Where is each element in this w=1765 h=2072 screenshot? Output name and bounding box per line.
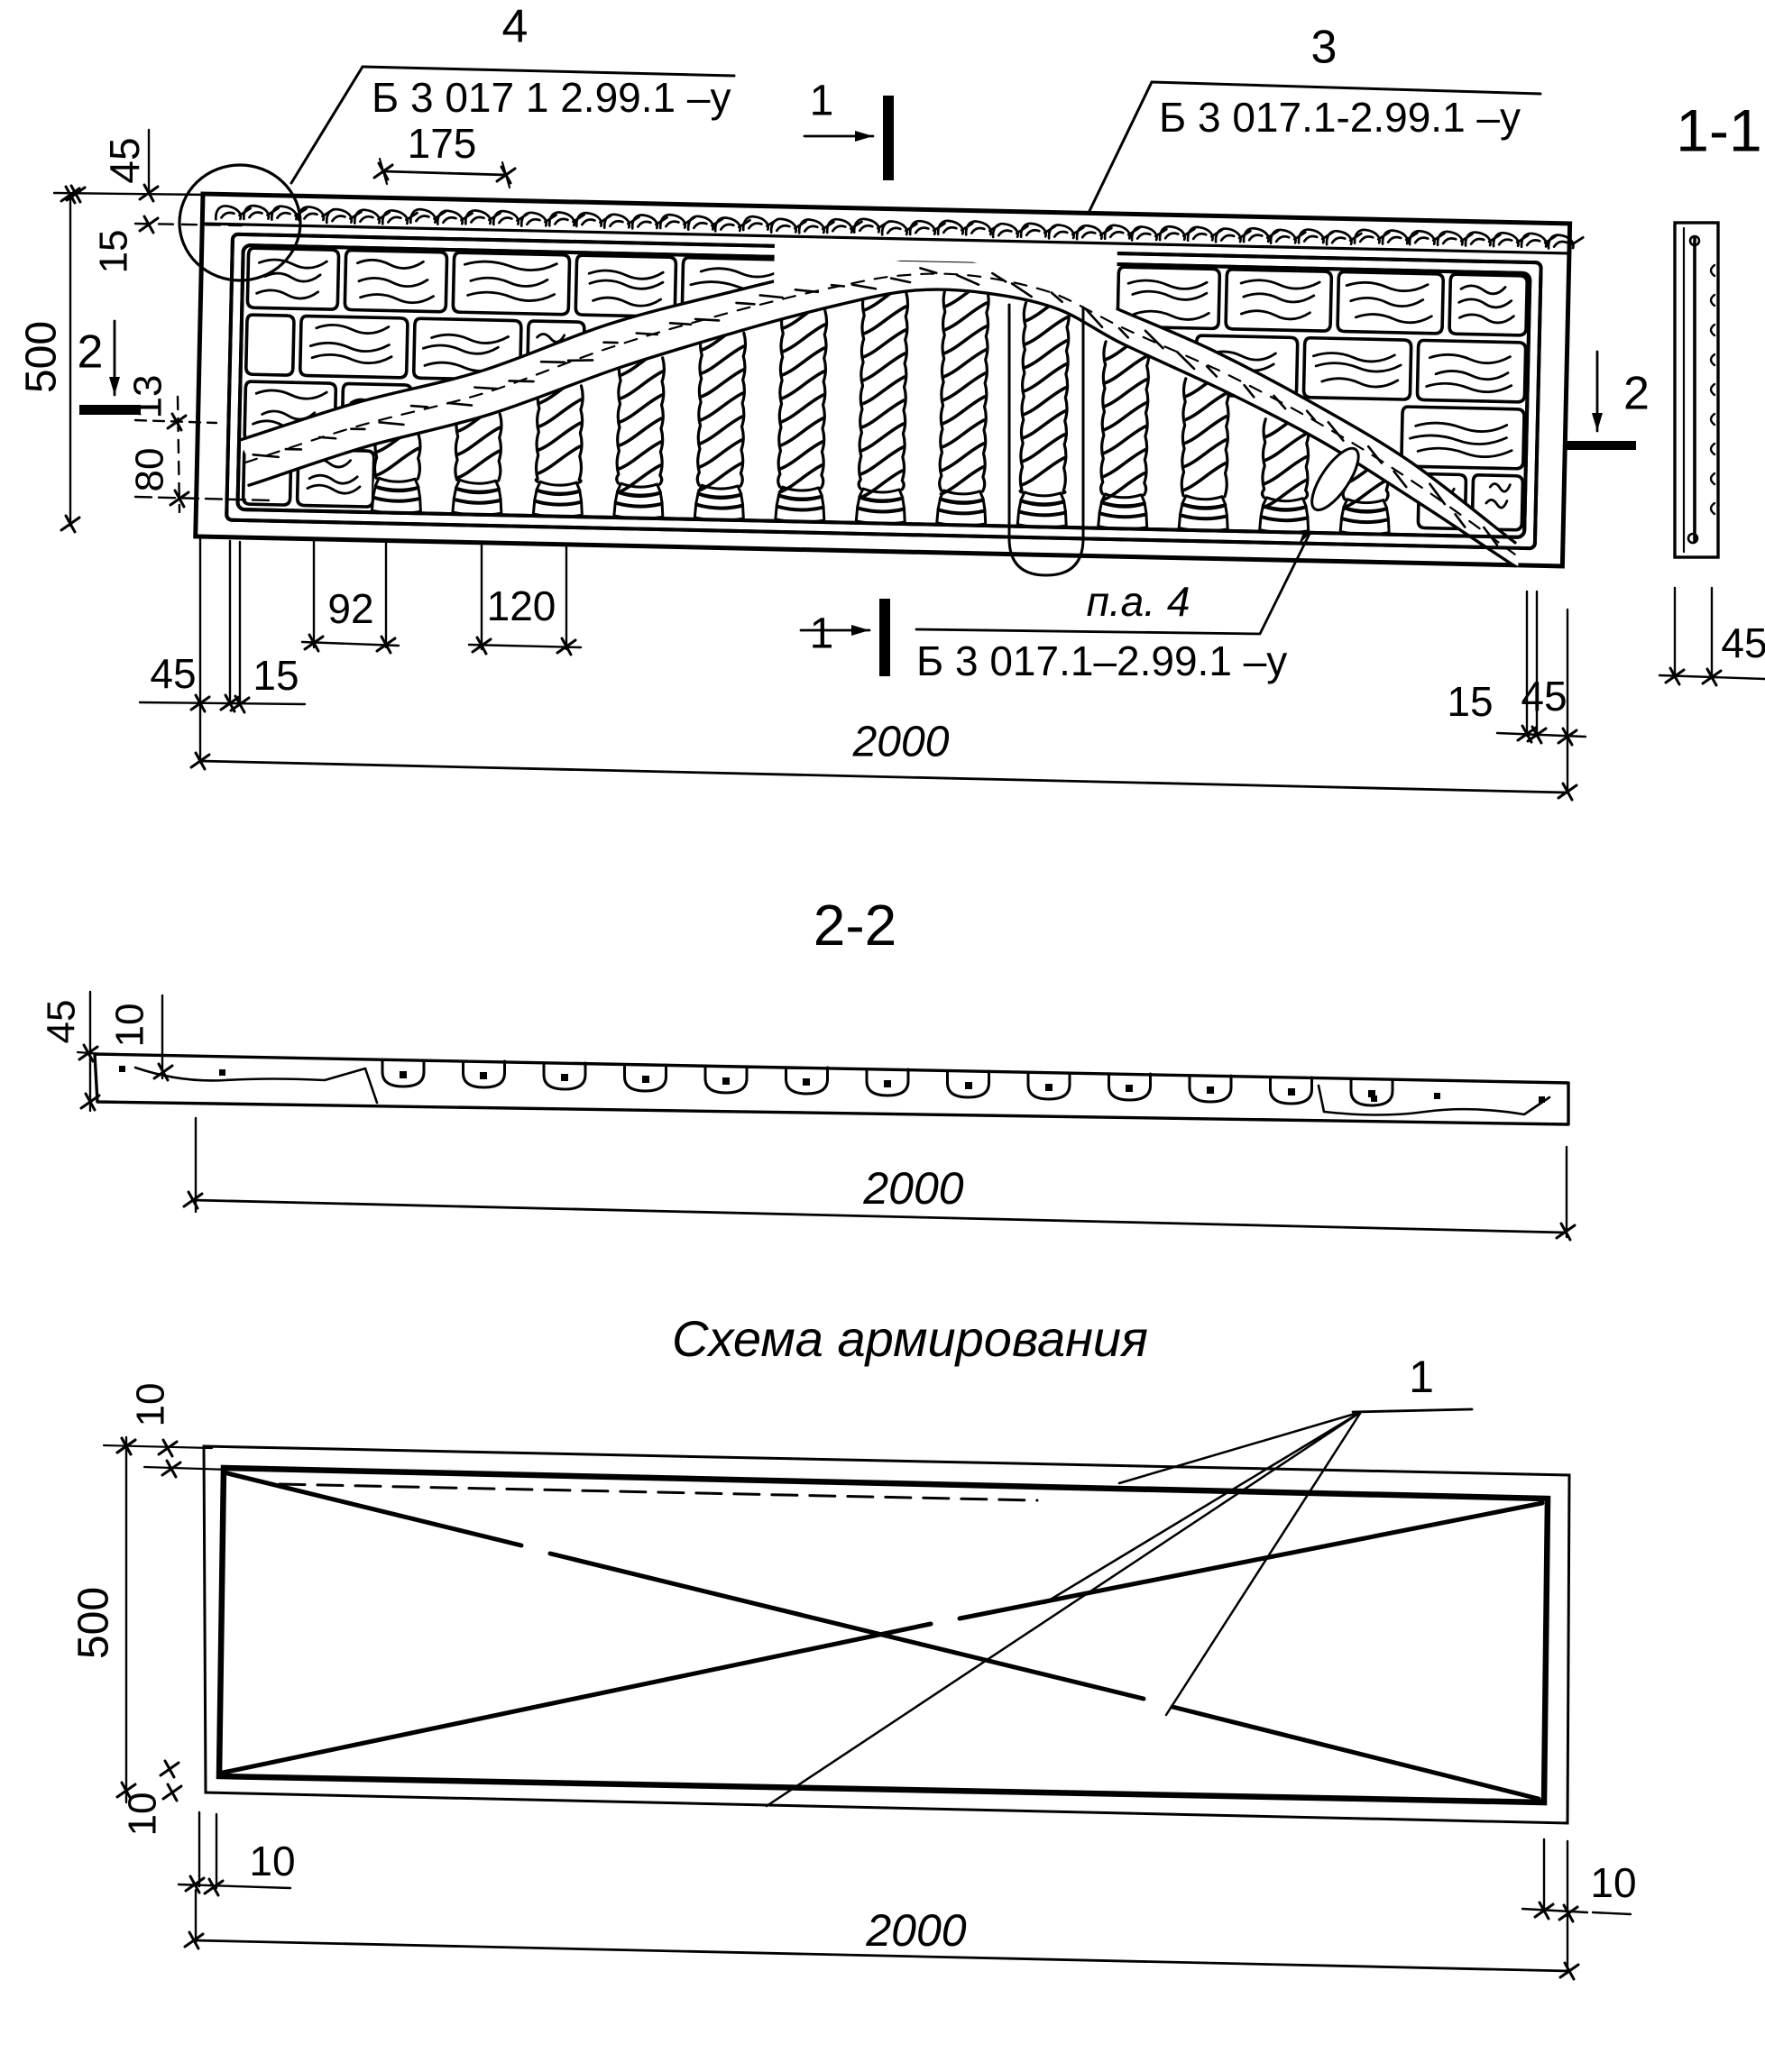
svg-text:1: 1 — [810, 610, 834, 658]
svg-text:45: 45 — [1721, 619, 1765, 666]
svg-text:10: 10 — [129, 1383, 173, 1427]
svg-text:4: 4 — [502, 1, 529, 53]
svg-text:Б 3 017.1-2.99.1 –у: Б 3 017.1-2.99.1 –у — [1159, 94, 1521, 141]
svg-text:15: 15 — [1447, 678, 1493, 725]
svg-text:10: 10 — [249, 1838, 295, 1884]
svg-text:80: 80 — [128, 448, 172, 492]
svg-text:Б 3 017 1 2.99.1 –у: Б 3 017 1 2.99.1 –у — [372, 74, 731, 121]
svg-text:Схема армирования: Схема армирования — [672, 1310, 1148, 1367]
svg-text:15: 15 — [253, 652, 299, 699]
svg-text:2000: 2000 — [862, 1163, 963, 1214]
svg-text:120: 120 — [487, 582, 556, 629]
svg-text:10: 10 — [1590, 1859, 1636, 1906]
svg-text:13: 13 — [126, 375, 170, 419]
svg-text:2000: 2000 — [852, 719, 950, 766]
svg-text:2: 2 — [78, 326, 104, 379]
svg-text:2-2: 2-2 — [814, 893, 897, 958]
svg-text:3: 3 — [1311, 22, 1338, 74]
svg-text:1: 1 — [1409, 1352, 1434, 1402]
svg-text:10: 10 — [108, 1004, 152, 1048]
svg-text:15: 15 — [92, 230, 136, 274]
svg-text:Б 3 017.1–2.99.1 –у: Б 3 017.1–2.99.1 –у — [916, 637, 1287, 684]
svg-text:2000: 2000 — [865, 1905, 966, 1956]
svg-text:45: 45 — [40, 1000, 84, 1044]
svg-text:45: 45 — [1521, 673, 1567, 720]
svg-text:1: 1 — [810, 78, 834, 125]
svg-text:1-1: 1-1 — [1676, 96, 1761, 163]
svg-text:2: 2 — [1623, 368, 1650, 420]
svg-text:п.а. 4: п.а. 4 — [1087, 578, 1190, 625]
svg-text:500: 500 — [70, 1587, 118, 1659]
svg-text:500: 500 — [18, 321, 66, 393]
svg-text:175: 175 — [408, 120, 477, 167]
svg-text:10: 10 — [121, 1792, 165, 1837]
svg-text:45: 45 — [150, 650, 196, 697]
svg-text:45: 45 — [101, 137, 148, 183]
svg-text:92: 92 — [327, 585, 373, 632]
